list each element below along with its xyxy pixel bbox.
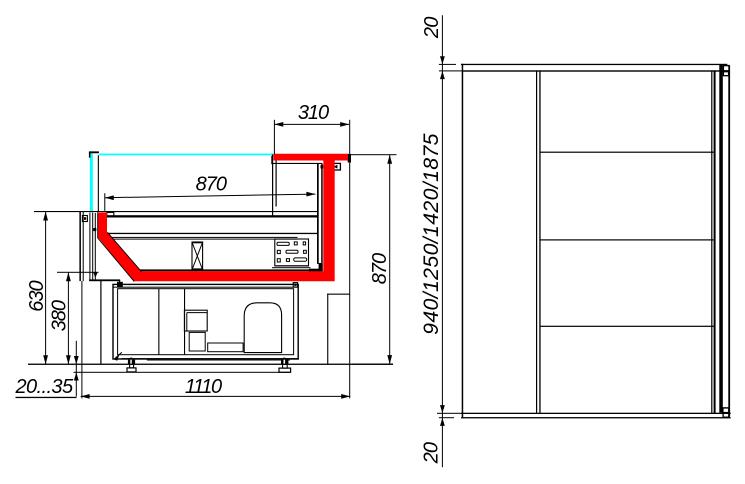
- svg-text:870: 870: [196, 173, 227, 195]
- svg-text:20...35: 20...35: [15, 376, 74, 398]
- svg-text:630: 630: [26, 280, 48, 311]
- svg-text:20: 20: [421, 442, 443, 464]
- svg-text:1110: 1110: [185, 376, 222, 398]
- svg-text:20: 20: [421, 17, 443, 39]
- svg-text:310: 310: [298, 102, 329, 124]
- svg-text:870: 870: [369, 253, 391, 284]
- svg-text:940/1250/1420/1875: 940/1250/1420/1875: [419, 133, 443, 335]
- svg-text:380: 380: [49, 300, 71, 331]
